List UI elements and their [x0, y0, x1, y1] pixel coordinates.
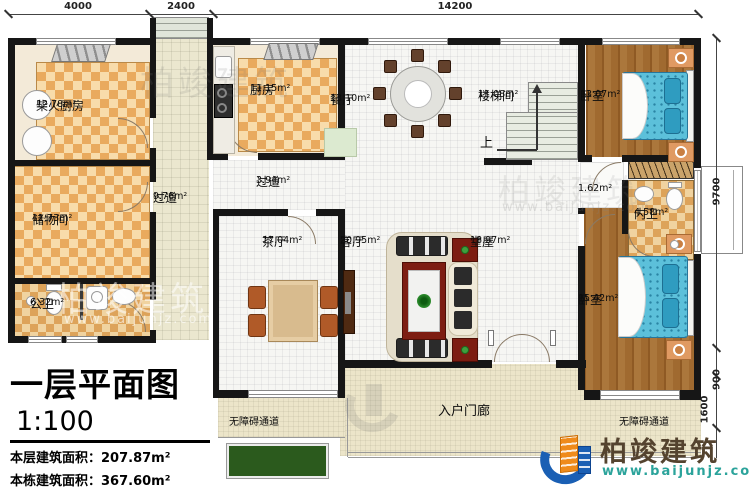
stat-total-area: 本栋建筑面积：367.60m² — [10, 470, 230, 489]
dining-chair — [411, 49, 424, 62]
room-area: 13.10m² — [330, 94, 370, 104]
dim-right-900: 900 — [712, 367, 723, 393]
stat-floor-area: 本层建筑面积：207.87m² — [10, 447, 230, 466]
bed2-pillow — [662, 298, 679, 328]
watermark-url: www.baijunjz.com — [502, 200, 651, 215]
ramp-text: 无障碍通道 — [619, 417, 669, 428]
nightstand — [668, 48, 694, 68]
bed1-pillow — [664, 108, 681, 134]
watermark-logo-tower — [366, 384, 382, 416]
wall-right-b — [694, 254, 701, 400]
room-area: 11.08m² — [478, 90, 518, 100]
dim-line-right — [716, 38, 717, 458]
wall-corridor-left-d — [150, 330, 156, 343]
sofa-cushion — [454, 311, 472, 329]
entry-door-jamb-left — [488, 330, 494, 346]
ramp-text: 无障碍通道 — [229, 417, 279, 428]
room-area: 20.95m² — [340, 236, 380, 246]
wall-tea-top-a — [213, 209, 288, 216]
wall-right-a — [694, 38, 701, 168]
dining-chair — [373, 87, 386, 100]
ensuite-toilet-bowl — [666, 188, 683, 210]
window-tea-room — [248, 390, 338, 398]
tea-chair — [320, 314, 338, 337]
wall-bed1-bottom-a — [584, 155, 592, 162]
watermark-brand: 柏竣建筑 — [140, 56, 292, 105]
room-area: 12.78m² — [36, 100, 76, 110]
logo-tower-blue-icon — [578, 446, 591, 474]
bed2-pillow — [662, 264, 679, 294]
bed1-pillow — [664, 78, 681, 104]
range-hood-1 — [51, 44, 111, 62]
plan-title: 一层平面图 — [10, 365, 180, 404]
sofa-cushions-bottom — [396, 338, 448, 358]
brand-logo: 柏竣建筑 www.baijunjz.com — [536, 428, 742, 490]
sofa-cushion — [454, 267, 472, 285]
window-public-bath-2 — [66, 336, 98, 343]
room-area: 4.58m² — [634, 208, 668, 218]
window-stair — [500, 38, 560, 45]
watermark-url: www.baijunjz.com — [64, 312, 213, 327]
wall-left — [8, 38, 15, 343]
room-area: 18.97m² — [470, 236, 510, 246]
window-bedroom1 — [602, 38, 680, 45]
dining-chair — [384, 60, 397, 73]
tea-chair — [248, 314, 266, 337]
room-area: 11.73m² — [32, 214, 72, 224]
title-block: 一层平面图 1:100 本层建筑面积：207.87m² 本栋建筑面积：367.6… — [10, 358, 230, 495]
room-area: 13.07m² — [580, 90, 620, 100]
logo-tower-orange-icon — [560, 435, 578, 473]
entry-door-jamb-right — [550, 330, 556, 346]
plant — [417, 294, 431, 308]
tea-table — [268, 280, 318, 342]
dining-chair — [438, 60, 451, 73]
stair-arrow-head — [532, 84, 542, 93]
dining-table-center — [404, 80, 432, 108]
wall-div-kitchen-storage — [8, 160, 150, 166]
tea-chair — [248, 286, 266, 309]
grass-bed — [227, 444, 328, 478]
wall-corridor-left-b — [150, 148, 156, 182]
room-area: 17.04m² — [262, 236, 302, 246]
brand-url: www.baijunjz.com — [602, 464, 750, 479]
floor-plan: 柏竣建筑 柏竣建筑 www.baijunjz.com 柏竣建筑 www.baij… — [0, 0, 750, 495]
nightstand — [666, 340, 692, 360]
room-area: 11.15m² — [250, 84, 290, 94]
room-area: 6.32m² — [30, 298, 64, 308]
dim-right-9700: 9700 — [712, 177, 723, 207]
porch-text: 入户门廊 — [438, 405, 490, 419]
dim-line-top — [8, 14, 700, 15]
up-text: 上 — [480, 137, 493, 151]
room-area: 9.76m² — [153, 192, 187, 202]
north-steps — [153, 17, 209, 39]
dim-right-1600: 1600 — [700, 395, 711, 425]
side-table-plant — [461, 346, 469, 354]
dining-chair — [384, 114, 397, 127]
sofa-cushions-top — [396, 236, 448, 256]
wall-kitchen-bottom-a — [213, 153, 228, 160]
window-dining — [368, 38, 448, 45]
room-area: 3.94m² — [256, 176, 290, 186]
sofa-cushion — [454, 289, 472, 307]
dining-chair — [449, 87, 462, 100]
dim-top-14200: 14200 — [420, 1, 490, 12]
wall-bed2-left-b — [578, 246, 585, 390]
window-bedroom2 — [600, 390, 680, 400]
wood-stove-2 — [22, 126, 52, 156]
stair-arrow-vertical — [536, 90, 538, 150]
dim-top-2400: 2400 — [152, 1, 210, 12]
room-area: 1.62m² — [578, 184, 612, 194]
ensuite-pendant — [670, 240, 679, 249]
dining-chair — [438, 114, 451, 127]
stair-arrow-horizontal — [497, 149, 537, 151]
room-area: 15.42m² — [578, 294, 618, 304]
window-bay-opening — [694, 170, 701, 252]
dim-top-4000: 4000 — [48, 1, 108, 12]
plan-scale: 1:100 — [16, 406, 94, 437]
title-underline — [10, 440, 210, 443]
dining-chair — [411, 125, 424, 138]
window-public-bath-1 — [28, 336, 62, 343]
tea-chair — [320, 286, 338, 309]
kitchen-mat — [324, 128, 357, 157]
side-table-plant — [461, 246, 469, 254]
bay-window-inner-line — [733, 170, 734, 250]
stair-flight-lower — [506, 112, 578, 160]
nightstand — [668, 142, 694, 162]
tv — [345, 292, 351, 314]
wall-tea-top-b — [316, 209, 345, 216]
